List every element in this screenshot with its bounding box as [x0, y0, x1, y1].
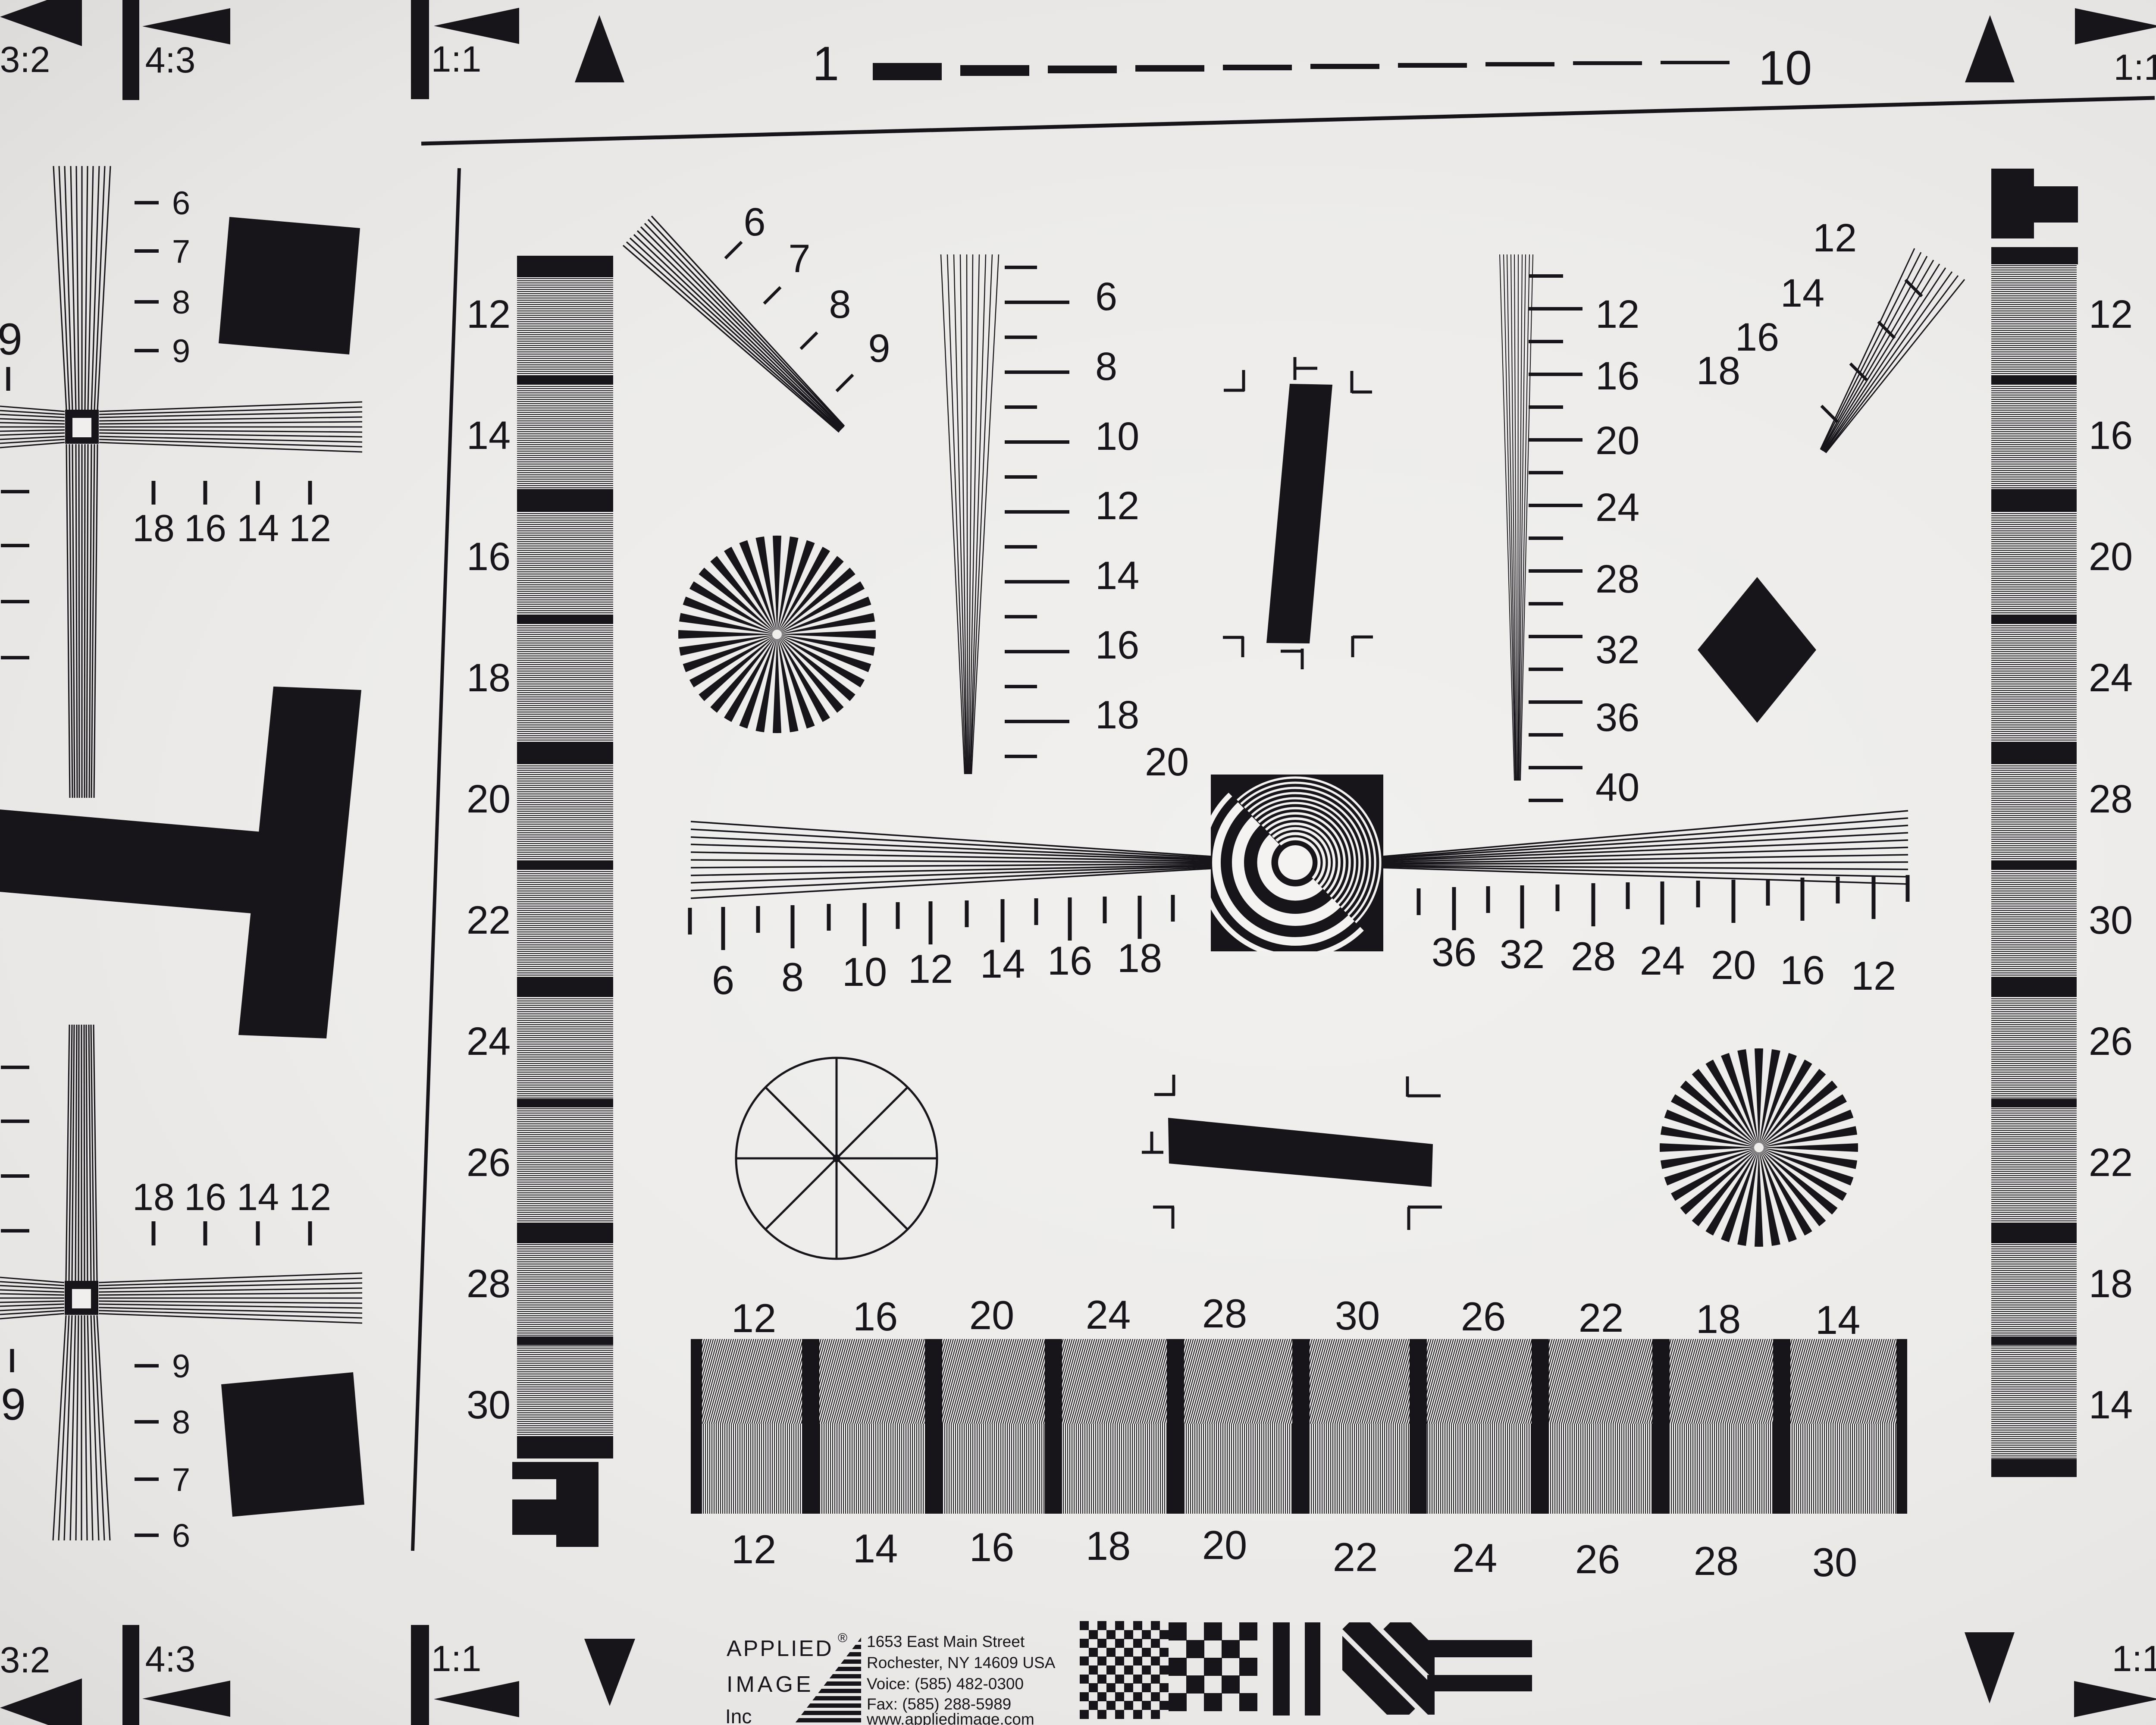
svg-text:32: 32 — [1500, 931, 1545, 977]
svg-text:1:1: 1:1 — [2114, 47, 2156, 88]
svg-text:26: 26 — [2089, 1019, 2133, 1063]
svg-text:14: 14 — [2089, 1383, 2133, 1427]
svg-text:6: 6 — [1095, 275, 1117, 319]
svg-text:18: 18 — [132, 507, 175, 549]
svg-text:18: 18 — [2089, 1262, 2133, 1306]
svg-text:3:2: 3:2 — [0, 1640, 50, 1680]
svg-text:1:1: 1:1 — [2112, 1638, 2156, 1679]
svg-text:20: 20 — [467, 777, 511, 821]
svg-text:26: 26 — [1575, 1537, 1620, 1582]
svg-text:9: 9 — [0, 314, 22, 364]
svg-text:8: 8 — [781, 954, 804, 1000]
svg-text:14: 14 — [980, 941, 1025, 986]
svg-text:22: 22 — [467, 898, 511, 942]
svg-text:9: 9 — [172, 1348, 190, 1385]
svg-text:14: 14 — [237, 1176, 279, 1218]
svg-text:IMAGE: IMAGE — [727, 1672, 814, 1697]
svg-text:14: 14 — [853, 1526, 898, 1571]
svg-text:16: 16 — [853, 1294, 898, 1339]
svg-text:1653 East Main Street: 1653 East Main Street — [867, 1633, 1025, 1650]
svg-text:20: 20 — [1202, 1522, 1247, 1568]
svg-text:18: 18 — [1696, 1296, 1741, 1342]
svg-text:10: 10 — [1758, 41, 1812, 95]
svg-text:16: 16 — [1095, 623, 1139, 667]
svg-text:8: 8 — [172, 284, 190, 321]
svg-text:18: 18 — [1086, 1523, 1131, 1568]
svg-text:6: 6 — [743, 200, 765, 244]
svg-text:12: 12 — [1595, 292, 1639, 336]
svg-text:16: 16 — [1735, 315, 1779, 359]
svg-text:30: 30 — [467, 1383, 511, 1427]
svg-text:12: 12 — [289, 1176, 331, 1218]
svg-text:8: 8 — [172, 1404, 190, 1441]
svg-text:4:3: 4:3 — [145, 1639, 196, 1679]
svg-text:10: 10 — [842, 949, 887, 994]
svg-text:4:3: 4:3 — [145, 40, 196, 80]
svg-text:16: 16 — [1047, 938, 1093, 983]
svg-text:16: 16 — [969, 1524, 1015, 1570]
svg-text:24: 24 — [1086, 1292, 1131, 1337]
svg-text:30: 30 — [2089, 898, 2133, 942]
svg-text:14: 14 — [1815, 1297, 1861, 1342]
svg-text:18: 18 — [1117, 935, 1163, 981]
svg-text:®: ® — [838, 1631, 847, 1645]
svg-text:12: 12 — [731, 1295, 777, 1341]
svg-text:10: 10 — [1095, 414, 1139, 458]
svg-text:7: 7 — [172, 233, 190, 270]
svg-text:18: 18 — [1095, 693, 1139, 737]
svg-text:20: 20 — [1595, 419, 1639, 463]
svg-text:12: 12 — [2089, 292, 2133, 336]
svg-text:30: 30 — [1812, 1540, 1858, 1585]
svg-text:16: 16 — [1780, 947, 1825, 993]
svg-text:9: 9 — [868, 326, 890, 370]
svg-text:8: 8 — [829, 282, 851, 326]
svg-text:Voice: (585) 482-0300: Voice: (585) 482-0300 — [867, 1675, 1024, 1693]
svg-text:7: 7 — [172, 1462, 190, 1498]
svg-text:12: 12 — [908, 946, 953, 991]
svg-text:APPLIED: APPLIED — [727, 1636, 834, 1661]
svg-text:20: 20 — [1711, 942, 1756, 988]
svg-text:12: 12 — [1095, 484, 1139, 528]
svg-text:8: 8 — [1095, 345, 1117, 389]
svg-text:22: 22 — [2089, 1141, 2133, 1185]
svg-text:1:1: 1:1 — [431, 1638, 482, 1679]
svg-text:www.appliedimage.com: www.appliedimage.com — [866, 1710, 1034, 1725]
svg-text:24: 24 — [2089, 656, 2133, 700]
svg-text:28: 28 — [1694, 1538, 1739, 1584]
svg-text:40: 40 — [1595, 765, 1639, 809]
svg-text:18: 18 — [132, 1176, 175, 1218]
svg-text:12: 12 — [731, 1527, 777, 1572]
svg-text:18: 18 — [467, 656, 511, 700]
svg-text:6: 6 — [712, 957, 734, 1003]
svg-text:16: 16 — [467, 535, 511, 579]
svg-text:22: 22 — [1333, 1534, 1378, 1580]
svg-text:20: 20 — [2089, 535, 2133, 579]
svg-text:Rochester, NY 14609 USA: Rochester, NY 14609 USA — [867, 1654, 1056, 1672]
svg-text:28: 28 — [467, 1262, 511, 1306]
svg-text:16: 16 — [184, 507, 226, 549]
svg-text:14: 14 — [467, 414, 511, 458]
svg-text:14: 14 — [237, 507, 279, 549]
svg-text:26: 26 — [467, 1141, 511, 1185]
svg-text:24: 24 — [1595, 486, 1639, 530]
svg-text:7: 7 — [788, 237, 810, 281]
svg-text:30: 30 — [1335, 1293, 1380, 1338]
svg-text:9: 9 — [172, 333, 190, 370]
svg-text:3:2: 3:2 — [0, 39, 50, 80]
svg-text:36: 36 — [1595, 696, 1639, 740]
svg-text:24: 24 — [1452, 1535, 1498, 1581]
svg-text:18: 18 — [1696, 349, 1740, 393]
svg-text:24: 24 — [1640, 938, 1685, 983]
svg-text:14: 14 — [1780, 271, 1824, 315]
svg-text:16: 16 — [184, 1176, 226, 1218]
svg-text:12: 12 — [289, 507, 331, 549]
svg-text:16: 16 — [1595, 354, 1639, 398]
svg-text:1:1: 1:1 — [431, 39, 482, 79]
svg-text:6: 6 — [172, 1518, 190, 1554]
svg-text:22: 22 — [1579, 1295, 1624, 1340]
svg-text:6: 6 — [172, 185, 190, 222]
svg-text:28: 28 — [1595, 557, 1639, 601]
svg-text:12: 12 — [1813, 216, 1857, 260]
svg-text:14: 14 — [1095, 554, 1139, 598]
svg-text:Inc: Inc — [725, 1705, 752, 1725]
svg-text:36: 36 — [1432, 929, 1477, 975]
svg-text:20: 20 — [1145, 740, 1189, 784]
svg-text:24: 24 — [467, 1019, 511, 1063]
svg-text:20: 20 — [969, 1292, 1015, 1338]
svg-text:28: 28 — [1202, 1291, 1247, 1336]
svg-text:12: 12 — [467, 292, 511, 336]
svg-text:12: 12 — [1851, 953, 1896, 998]
svg-text:9: 9 — [1, 1380, 26, 1430]
svg-text:26: 26 — [1461, 1294, 1506, 1339]
svg-text:28: 28 — [2089, 777, 2133, 821]
svg-text:28: 28 — [1571, 934, 1616, 979]
svg-text:1: 1 — [812, 37, 839, 91]
svg-text:16: 16 — [2089, 414, 2133, 458]
svg-text:32: 32 — [1595, 628, 1639, 672]
